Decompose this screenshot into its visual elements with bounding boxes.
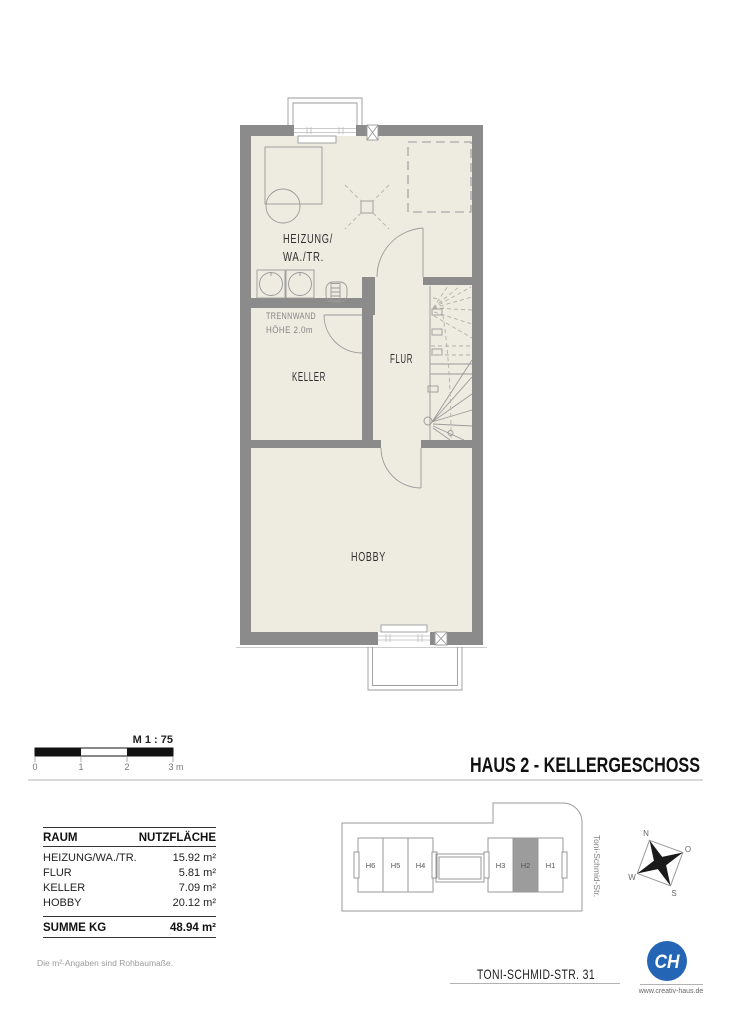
row-1-room: FLUR [43, 867, 72, 879]
website-label: www.creativ-haus.de [638, 988, 704, 995]
row-2-room: KELLER [43, 882, 85, 894]
wall-hobby-right [421, 440, 472, 448]
compass-s: S [671, 889, 676, 898]
row-3-area: 20.12 m² [173, 897, 217, 909]
site-unit-h1: H1 [546, 861, 556, 870]
table-row: KELLER 7.09 m² [43, 882, 216, 894]
table-row: HOBBY 20.12 m² [43, 897, 216, 909]
window-sill-bottom [381, 625, 427, 632]
address-label: TONI-SCHMID-STR. 31 [477, 966, 595, 982]
street-label: Toni-Schmid-Str. [592, 835, 602, 897]
table-total-value: 48.94 m² [170, 922, 216, 934]
floor-plan-sheet: HEIZUNG/ WA./TR. TRENNWAND HÖHE 2.0m KEL… [0, 0, 731, 1024]
entry-notch [354, 852, 359, 878]
logo-initials: CH [655, 952, 681, 973]
row-0-area: 15.92 m² [173, 852, 217, 864]
row-1-area: 5.81 m² [179, 867, 217, 879]
compass-rose: N O S W [628, 829, 691, 898]
site-unit-h3: H3 [496, 861, 506, 870]
compass-n: N [643, 829, 649, 838]
compass-star [637, 840, 683, 886]
lightwell-top-inner [293, 103, 357, 125]
site-garage [436, 854, 484, 882]
site-unit-h4: H4 [416, 861, 426, 870]
table-header-area: NUTZFLÄCHE [139, 831, 217, 844]
wall-heizung-flur [423, 277, 472, 285]
wall-keller-flur [362, 315, 373, 440]
lightwell-top-outer [288, 98, 362, 125]
area-table: RAUM NUTZFLÄCHE HEIZUNG/WA./TR. 15.92 m²… [37, 828, 216, 969]
site-unit-h5: H5 [391, 861, 401, 870]
table-total-label: SUMME KG [43, 922, 106, 934]
site-plan: H6 H5 H4 H3 H2 H1 Toni-Schmid-Str. [342, 803, 602, 911]
floor-plan: HEIZUNG/ WA./TR. TRENNWAND HÖHE 2.0m KEL… [236, 98, 487, 690]
table-row: FLUR 5.81 m² [43, 867, 216, 879]
room-label-flur: FLUR [390, 351, 413, 366]
annotation-trennwand-2: HÖHE 2.0m [266, 325, 313, 336]
wall-hobby-left [251, 440, 381, 448]
annotation-trennwand-1: TRENNWAND [266, 311, 316, 322]
table-row: HEIZUNG/WA./TR. 15.92 m² [43, 852, 216, 864]
page-title: HAUS 2 - KELLERGESCHOSS [470, 754, 700, 777]
room-label-heizung-2: WA./TR. [283, 249, 324, 264]
scale-label: M 1 : 75 [133, 734, 173, 746]
sheet-canvas: HEIZUNG/ WA./TR. TRENNWAND HÖHE 2.0m KEL… [0, 0, 731, 1024]
room-label-hobby: HOBBY [351, 549, 386, 564]
lightwell-bottom-outer [368, 647, 462, 690]
window-sill-top [298, 136, 336, 143]
room-label-keller: KELLER [292, 369, 326, 384]
scale-tick-1: 1 [78, 762, 83, 772]
compass-w: W [628, 873, 636, 882]
entry-notch [484, 852, 489, 878]
lightwell-bottom-inner [373, 647, 458, 686]
site-unit-h6: H6 [366, 861, 376, 870]
footer: TONI-SCHMID-STR. 31 CH www.creativ-haus.… [450, 941, 703, 995]
row-2-area: 7.09 m² [179, 882, 217, 894]
room-label-heizung-1: HEIZUNG/ [283, 231, 333, 246]
wall-heizung-keller [251, 298, 373, 308]
site-unit-h2: H2 [521, 861, 531, 870]
row-3-room: HOBBY [43, 897, 82, 909]
scale-bar: M 1 : 75 0 1 2 3 m [32, 734, 183, 772]
scale-tick-2: 2 [124, 762, 129, 772]
table-header-room: RAUM [43, 832, 78, 844]
compass-o: O [685, 845, 691, 854]
row-0-room: HEIZUNG/WA./TR. [43, 852, 137, 864]
scale-tick-0: 0 [32, 762, 37, 772]
footnote: Die m²-Angaben sind Rohbaumaße. [37, 958, 173, 968]
wall-stub [362, 277, 375, 315]
scale-tick-3: 3 m [168, 762, 183, 772]
entry-notch [562, 852, 567, 878]
